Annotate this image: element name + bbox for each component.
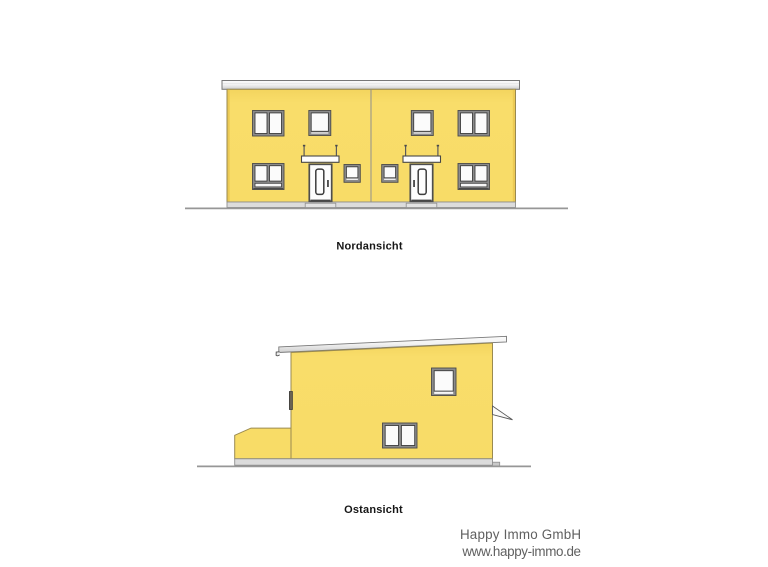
svg-text:www.happy-immo.de: www.happy-immo.de: [461, 544, 580, 559]
svg-text:Happy Immo GmbH: Happy Immo GmbH: [460, 527, 581, 542]
svg-text:Nordansicht: Nordansicht: [336, 241, 403, 253]
svg-text:Ostansicht: Ostansicht: [344, 504, 403, 516]
